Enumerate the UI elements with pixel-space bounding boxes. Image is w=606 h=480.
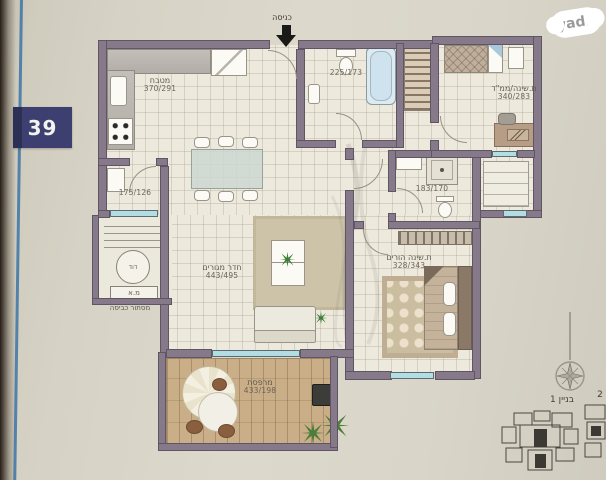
room-dims: 370/291 (132, 85, 188, 94)
wall (396, 43, 404, 148)
dining-chair (218, 191, 234, 202)
building-key-plan (500, 410, 580, 472)
bathroom-sink (308, 84, 320, 104)
yad2-logo: yad2 (549, 5, 603, 39)
wall (158, 352, 166, 450)
dining-chair (194, 137, 210, 148)
apartment-number-badge: 39 (13, 107, 72, 148)
compass-icon (548, 310, 592, 398)
room-dims: 340/283 (478, 93, 550, 102)
room-label-master: ת.שינה הורים 328/343 (374, 253, 444, 271)
desk-laptop (507, 129, 529, 141)
dining-chair (242, 190, 258, 201)
window (390, 372, 434, 379)
wall (430, 43, 439, 123)
window (503, 210, 527, 217)
wall (345, 371, 392, 380)
room-dims: 183/170 (404, 185, 460, 194)
sofa-back (254, 330, 316, 343)
kitchen-cabinet (211, 49, 247, 76)
toilet-tank (336, 49, 356, 57)
entrance-arrow-stem (282, 25, 291, 35)
kitchen-sink (110, 76, 127, 106)
room-label-bathroom: 225/173 (318, 69, 374, 78)
toilet2-bowl (438, 202, 452, 218)
room-dims: 433/198 (234, 387, 286, 396)
plant-icon (279, 251, 296, 268)
wall (517, 150, 535, 158)
wall (160, 166, 169, 358)
dining-chair (242, 137, 258, 148)
room-dims: 225/173 (318, 69, 374, 78)
nightstand (508, 47, 524, 69)
desk-chair (498, 113, 516, 125)
wall (158, 443, 338, 451)
master-dresser (398, 231, 474, 245)
window (212, 350, 300, 357)
dining-table (191, 149, 263, 189)
wall (98, 40, 270, 49)
master-pillow (443, 312, 456, 336)
room-label-kitchen: מטבח 370/291 (132, 76, 188, 94)
wall (435, 371, 475, 380)
wall (296, 140, 336, 148)
room-label-service: 175/126 (112, 189, 158, 198)
patio-chair (218, 424, 235, 438)
building-key-label: בניין 1 (536, 395, 588, 405)
dining-chair (218, 136, 234, 147)
wall (166, 349, 212, 358)
laundry-screen-caption: מסתור כביסה (90, 304, 170, 312)
wall (330, 356, 338, 448)
wall (98, 210, 110, 218)
shaft-hatch (404, 43, 432, 111)
bed-single (444, 45, 488, 73)
room-dims: 443/495 (190, 272, 254, 281)
wall (296, 49, 305, 148)
wall (388, 221, 480, 229)
shower-stall (426, 155, 458, 185)
dining-chair (194, 190, 210, 201)
window (492, 151, 517, 157)
wall (156, 158, 168, 166)
kitchen-stove (108, 118, 133, 145)
wall (300, 349, 354, 358)
wall (298, 40, 438, 49)
room-label-balcony: מרפסת 433/198 (234, 378, 286, 396)
room-label-shower-room: 183/170 (404, 185, 460, 194)
wall (472, 150, 481, 379)
laundry-louvers (104, 224, 162, 248)
entrance-arrow-icon (276, 35, 296, 47)
wall (533, 36, 542, 218)
patio-chair (212, 378, 227, 391)
room-dims: 175/126 (112, 189, 158, 198)
wall (388, 150, 396, 192)
wall (92, 215, 99, 305)
wall (354, 221, 364, 229)
room-label-safe-bedroom: ת.שינה/ממ"ד 340/283 (478, 84, 550, 102)
floor-plan-sheet: 39 yad2 (0, 0, 606, 480)
bbq-grill (312, 384, 332, 406)
wall (98, 158, 130, 166)
wall (430, 150, 492, 158)
boiler: דוד (116, 250, 150, 284)
window (110, 210, 158, 217)
shower-drain (440, 168, 444, 172)
room-label-living: חדר מגורים 443/495 (190, 263, 254, 281)
wardrobe-shelves (483, 161, 529, 207)
shower-room-sink (396, 157, 422, 170)
desk (494, 123, 538, 147)
wall (432, 36, 542, 45)
master-pillow (443, 282, 456, 306)
room-dims: 328/343 (374, 262, 444, 271)
entrance-label: כניסה (258, 13, 306, 22)
master-bed-headboard (458, 266, 472, 350)
plant-icon (314, 311, 328, 325)
building2-key-label: 2 (594, 390, 606, 400)
wall (98, 40, 107, 218)
patio-chair (186, 420, 203, 434)
building2-key-plan (584, 402, 606, 468)
wall (345, 148, 354, 160)
